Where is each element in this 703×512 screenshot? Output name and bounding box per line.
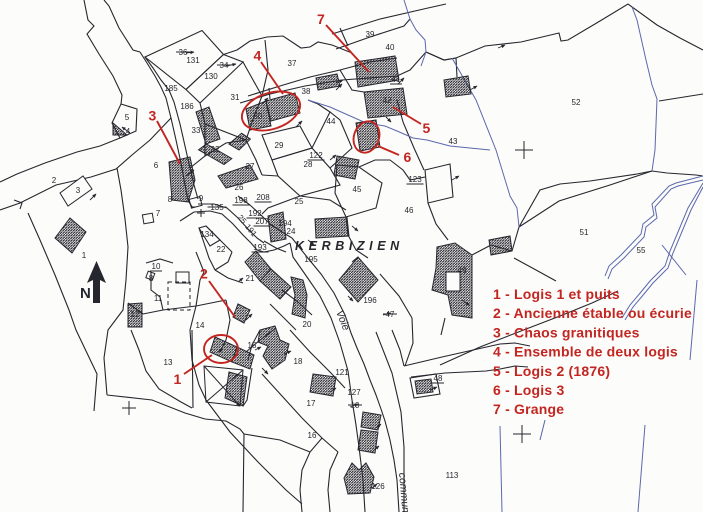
svg-text:6: 6	[404, 149, 412, 165]
svg-text:25: 25	[295, 197, 304, 206]
svg-text:24: 24	[287, 227, 296, 236]
svg-text:55: 55	[637, 246, 646, 255]
svg-text:134: 134	[200, 230, 214, 239]
svg-text:12: 12	[131, 310, 140, 319]
svg-text:198: 198	[234, 196, 248, 205]
svg-text:22: 22	[217, 245, 226, 254]
svg-text:113: 113	[446, 471, 459, 480]
svg-text:127: 127	[347, 388, 361, 397]
svg-text:49: 49	[458, 266, 467, 275]
svg-text:11: 11	[154, 294, 163, 303]
svg-text:46: 46	[405, 206, 414, 215]
svg-text:1: 1	[174, 371, 182, 387]
svg-text:43: 43	[449, 137, 458, 146]
svg-text:16: 16	[308, 431, 317, 440]
svg-text:51: 51	[580, 228, 589, 237]
svg-text:195: 195	[304, 255, 318, 264]
svg-text:1: 1	[82, 251, 87, 260]
svg-text:130: 130	[204, 72, 218, 81]
svg-text:30: 30	[254, 112, 263, 121]
svg-text:8: 8	[168, 195, 173, 204]
svg-text:186: 186	[180, 102, 194, 111]
svg-text:20: 20	[303, 320, 312, 329]
svg-text:31: 31	[231, 93, 240, 102]
svg-text:6: 6	[154, 161, 159, 170]
svg-text:2: 2	[200, 266, 208, 282]
svg-text:41: 41	[392, 75, 401, 84]
svg-text:18: 18	[294, 357, 303, 366]
svg-text:29: 29	[275, 141, 284, 150]
svg-text:7: 7	[156, 209, 161, 218]
svg-text:5: 5	[423, 120, 431, 136]
svg-text:28: 28	[304, 160, 313, 169]
svg-text:37: 37	[288, 59, 297, 68]
svg-text:32: 32	[211, 145, 220, 154]
svg-text:38: 38	[302, 87, 311, 96]
svg-text:4 - Ensemble de deux logis: 4 - Ensemble de deux logis	[493, 344, 678, 360]
svg-text:122: 122	[309, 151, 323, 160]
svg-text:N: N	[80, 285, 91, 302]
svg-text:7 - Grange: 7 - Grange	[493, 401, 564, 417]
svg-text:121: 121	[335, 368, 349, 377]
svg-text:5 - Logis 2 (1876): 5 - Logis 2 (1876)	[493, 363, 610, 379]
svg-text:39: 39	[366, 30, 375, 39]
svg-text:33: 33	[192, 126, 201, 135]
svg-text:126: 126	[371, 482, 385, 491]
svg-text:40: 40	[386, 43, 395, 52]
svg-text:15: 15	[248, 341, 257, 350]
svg-text:48: 48	[434, 374, 443, 383]
svg-text:2: 2	[52, 176, 57, 185]
svg-text:44: 44	[327, 117, 336, 126]
svg-text:185: 185	[164, 84, 178, 93]
svg-text:6 - Logis 3: 6 - Logis 3	[493, 382, 564, 398]
svg-text:207: 207	[255, 217, 269, 226]
svg-text:10: 10	[152, 262, 161, 271]
svg-text:9: 9	[199, 194, 204, 203]
svg-text:26: 26	[235, 183, 244, 192]
svg-text:7: 7	[317, 11, 325, 27]
svg-text:13: 13	[164, 358, 173, 367]
svg-text:3: 3	[149, 108, 157, 124]
svg-text:196: 196	[363, 296, 377, 305]
svg-text:3: 3	[76, 186, 81, 195]
svg-text:14: 14	[196, 321, 205, 330]
svg-text:3 - Chaos granitiques: 3 - Chaos granitiques	[493, 324, 640, 340]
svg-text:1 - Logis 1 et puits: 1 - Logis 1 et puits	[493, 286, 620, 302]
svg-text:42: 42	[383, 96, 392, 105]
svg-text:8: 8	[149, 274, 154, 283]
svg-text:52: 52	[572, 98, 581, 107]
svg-text:21: 21	[246, 274, 255, 283]
svg-text:5: 5	[125, 113, 130, 122]
svg-text:17: 17	[307, 399, 316, 408]
svg-text:193: 193	[253, 243, 267, 252]
svg-text:131: 131	[186, 56, 200, 65]
svg-text:4: 4	[254, 48, 262, 64]
svg-text:2 - Ancienne étable ou écurie: 2 - Ancienne étable ou écurie	[493, 305, 692, 321]
svg-text:123: 123	[408, 175, 422, 184]
svg-text:27: 27	[246, 162, 255, 171]
svg-text:4: 4	[126, 127, 131, 136]
svg-text:208: 208	[256, 193, 270, 202]
svg-text:KERBIZIEN: KERBIZIEN	[295, 239, 404, 253]
svg-text:45: 45	[353, 185, 362, 194]
